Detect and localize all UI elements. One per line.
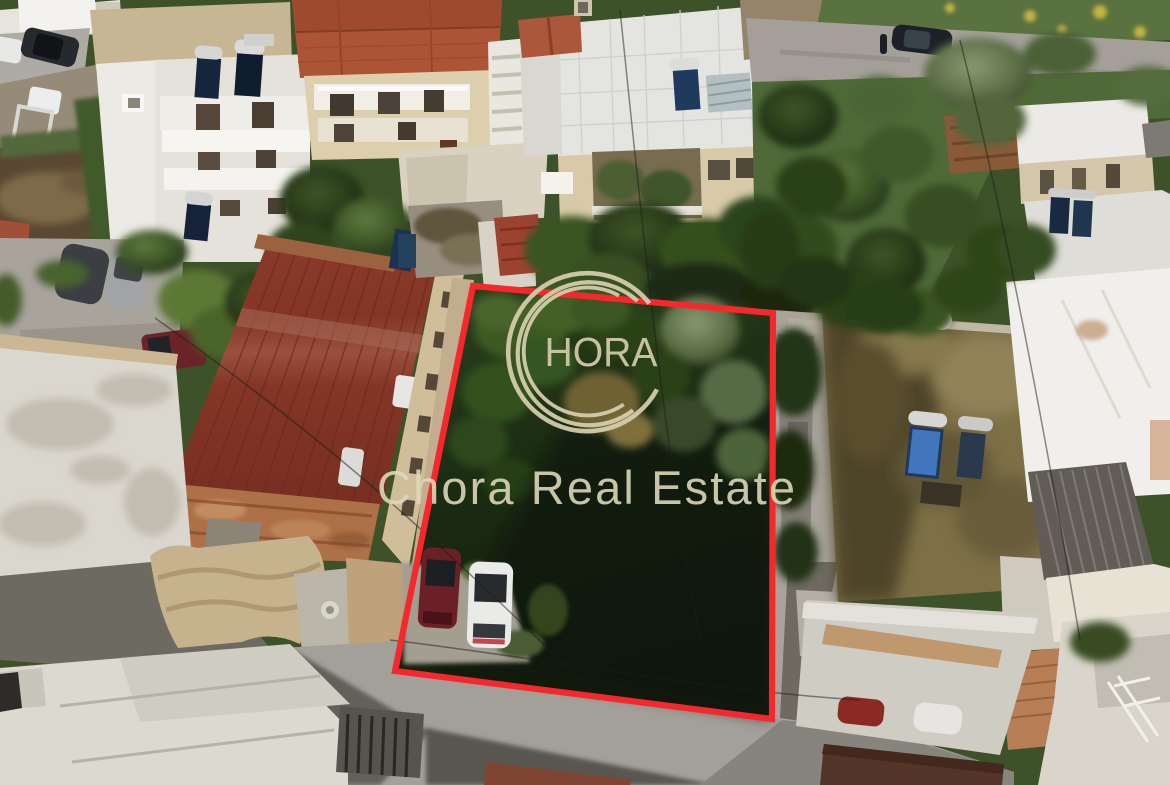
svg-text:HORA: HORA xyxy=(545,329,659,375)
